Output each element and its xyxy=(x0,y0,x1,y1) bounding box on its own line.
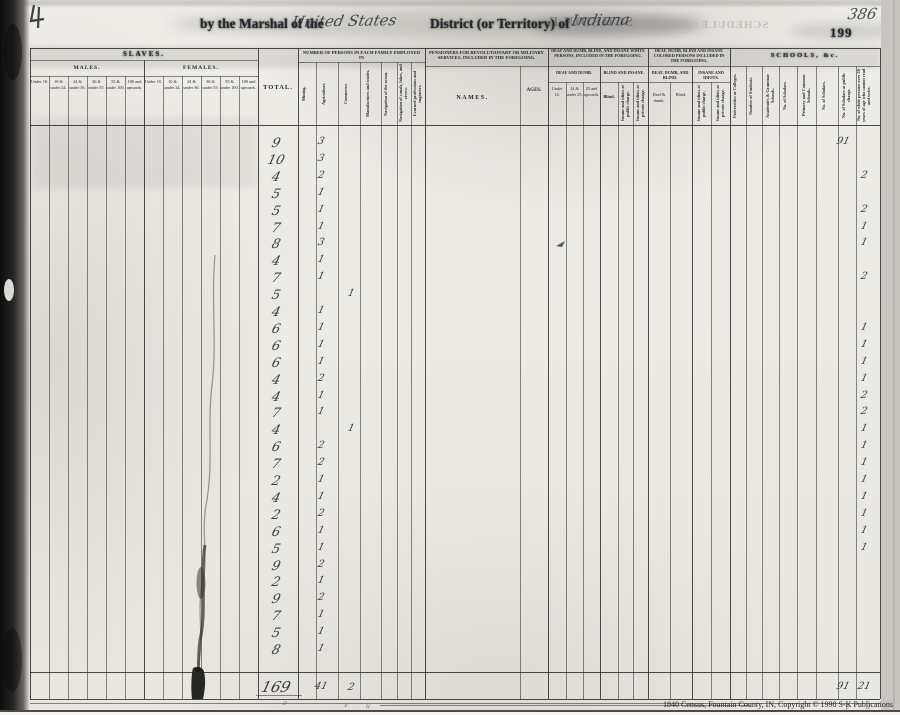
tally-mark: y xyxy=(841,703,853,711)
column-label-schools: Primary and Common Schools. xyxy=(801,68,813,123)
column-label-schools: Number of Students. xyxy=(748,68,760,123)
handwritten-value-illiterate: 2 xyxy=(851,170,878,181)
column-label-employment: Manufactures and trades. xyxy=(365,64,377,123)
handwritten-value-total: 7 xyxy=(262,609,290,624)
section-title-white-impaired: DEAF AND DUMB, BLIND, AND INSANE WHITE P… xyxy=(550,49,646,59)
grid-line-vertical xyxy=(692,66,693,699)
handwritten-value-agriculture: 1 xyxy=(308,339,335,350)
header-printed-middle: District (or Territory) of xyxy=(430,16,570,32)
column-label-blind: Blind. xyxy=(600,94,618,99)
column-label-schools: No. of Scholars. xyxy=(782,68,794,123)
section-title-slaves: SLAVES. xyxy=(84,50,204,58)
handwritten-value-total: 6 xyxy=(262,440,290,455)
column-label-slave-age: 10 & under 24. xyxy=(49,79,68,90)
column-label-slave-age: 36 & under 55. xyxy=(87,79,106,90)
handwritten-value-total: 4 xyxy=(262,254,290,269)
handwritten-value-agriculture: 2 xyxy=(308,559,335,570)
handwritten-value-illiterate: 1 xyxy=(851,508,878,519)
handwritten-page-number: 386 xyxy=(846,5,878,23)
handwritten-value-agriculture: 2 xyxy=(308,508,335,519)
grid-line-vertical xyxy=(779,66,780,699)
handwritten-value-total: 9 xyxy=(262,559,290,574)
totals-value-agriculture: 41 xyxy=(308,681,335,692)
grid-line-vertical xyxy=(338,62,339,699)
subheader-females: FEMALES. xyxy=(161,65,241,71)
handwritten-value-total: 7 xyxy=(262,271,290,286)
column-title-names: NAMES. xyxy=(432,95,513,102)
grid-line-vertical xyxy=(648,48,649,699)
ghost-schedule-text-2: SCHEDULE xyxy=(700,19,769,31)
column-label-white-deaf: 25 and upwards. xyxy=(583,86,600,97)
grid-line-horizontal xyxy=(30,60,258,61)
handwritten-value-total: 9 xyxy=(262,136,290,151)
grid-line-vertical xyxy=(600,66,601,699)
column-title-ages: AGES. xyxy=(520,88,548,94)
column-label-slave-age: 55 & under 100. xyxy=(106,79,125,90)
column-label-white-deaf: 14 & under 25. xyxy=(566,86,583,97)
grid-line-vertical xyxy=(182,76,183,699)
column-label-colored-deaf: Deaf & dumb. xyxy=(649,92,670,103)
handwritten-value-illiterate: 2 xyxy=(851,204,878,215)
handwritten-value-agriculture: 2 xyxy=(308,170,335,181)
grid-line-vertical xyxy=(298,48,299,699)
handwritten-value-total: 8 xyxy=(262,643,290,658)
handwritten-value-agriculture: 1 xyxy=(308,254,335,265)
column-label-schools: Academies & Grammar Schools. xyxy=(765,68,777,123)
handwritten-value-total: 5 xyxy=(262,204,290,219)
grid-line-vertical xyxy=(397,62,398,699)
column-label-slave-age: 24 & under 36. xyxy=(68,79,87,90)
handwritten-value-total: 8 xyxy=(262,237,290,252)
grid-line-vertical xyxy=(797,66,798,699)
handwritten-value-agriculture: 1 xyxy=(308,643,335,654)
grid-line-vertical xyxy=(425,48,426,699)
column-label-slave-age: 100 and upwards. xyxy=(125,79,144,90)
handwritten-value-total: 5 xyxy=(262,288,290,303)
grid-line-vertical xyxy=(201,76,202,699)
column-label-white-deaf: Under 14. xyxy=(549,86,566,97)
grid-line-vertical xyxy=(548,48,549,699)
grid-line-horizontal xyxy=(730,66,880,67)
column-label-employment: Mining. xyxy=(301,64,313,123)
handwritten-value-total: 6 xyxy=(262,525,290,540)
printed-page-number: 199 xyxy=(830,25,853,40)
right-margin xyxy=(881,0,900,715)
handwritten-value-illiterate: 1 xyxy=(851,542,878,553)
grid-line-vertical xyxy=(816,66,817,699)
grid-line-horizontal xyxy=(648,66,730,67)
handwritten-value-commerce: 1 xyxy=(338,288,365,299)
tally-mark: u xyxy=(862,703,874,711)
handwritten-value-illiterate: 1 xyxy=(851,221,878,232)
handwritten-value-total: 5 xyxy=(262,626,290,641)
grid-line-vertical xyxy=(583,82,584,699)
handwritten-value-agriculture: 1 xyxy=(308,491,335,502)
handwritten-value-agriculture: 1 xyxy=(308,305,335,316)
grid-line-vertical xyxy=(258,48,259,699)
handwritten-value-total: 6 xyxy=(262,322,290,337)
grid-line-horizontal xyxy=(30,703,880,704)
grid-line-vertical xyxy=(566,82,567,699)
column-label-slave-age: 36 & under 55. xyxy=(201,79,220,90)
section-title-employment: NUMBER OF PERSONS IN EACH FAMILY EMPLOYE… xyxy=(300,50,423,61)
grid-line-vertical xyxy=(239,76,240,699)
handwritten-value-agriculture: 2 xyxy=(308,440,335,451)
handwritten-value-agriculture: 1 xyxy=(308,187,335,198)
totals-value-commerce: 2 xyxy=(338,682,365,693)
handwritten-value-illiterate: 1 xyxy=(851,491,878,502)
column-label-slave-age: Under 10. xyxy=(144,79,163,85)
column-label-colored-insane: Insane and idiots at public charge. xyxy=(696,84,708,123)
census-scan-page: SCHEDULE SCHEDULE by the Marshal of the … xyxy=(0,0,900,715)
grid-line-vertical xyxy=(125,76,126,699)
grid-line-horizontal xyxy=(30,48,880,49)
handwritten-value-illiterate: 1 xyxy=(851,457,878,468)
handwritten-value-agriculture: 1 xyxy=(308,204,335,215)
handwritten-value-agriculture: 1 xyxy=(308,542,335,553)
handwritten-value-agriculture: 1 xyxy=(308,474,335,485)
handwritten-value-illiterate: 1 xyxy=(851,423,878,434)
grid-line-horizontal xyxy=(298,62,425,63)
handwritten-value-agriculture: 3 xyxy=(308,136,335,147)
handwritten-value-agriculture: 1 xyxy=(308,626,335,637)
handwritten-value-total: 4 xyxy=(262,373,290,388)
grid-line-horizontal xyxy=(548,82,730,83)
section-title-pensioners: PENSIONERS FOR REVOLUTIONARY OR MILITARY… xyxy=(427,50,546,61)
column-label-colored-insane: Insane and idiots at private charge. xyxy=(715,84,727,123)
handwritten-value-agriculture: 1 xyxy=(308,390,335,401)
handwritten-value-agriculture: 2 xyxy=(308,457,335,468)
handwritten-value-total: 7 xyxy=(262,406,290,421)
handwritten-value-illiterate: 2 xyxy=(851,390,878,401)
handwritten-value-illiterate: 2 xyxy=(851,271,878,282)
grid-line-vertical xyxy=(762,66,763,699)
column-label-employment: Agriculture. xyxy=(321,64,333,123)
grid-line-vertical xyxy=(411,62,412,699)
handwritten-value-total: 4 xyxy=(262,423,290,438)
column-label-schools: No. of white persons over 20 years of ag… xyxy=(856,68,880,123)
grid-line-horizontal xyxy=(30,76,258,77)
grid-line-vertical xyxy=(30,48,31,699)
tally-mark: v xyxy=(340,701,352,709)
handwritten-value-total: 4 xyxy=(262,390,290,405)
section-title-colored-impaired: DEAF, DUMB, BLIND AND INSANE COLORED PER… xyxy=(650,49,728,64)
handwritten-value-agriculture: 3 xyxy=(308,153,335,164)
subheader-males: MALES. xyxy=(47,65,127,71)
handwritten-value-total: 9 xyxy=(262,592,290,607)
grid-line-vertical xyxy=(106,76,107,699)
handwritten-value-agriculture: 1 xyxy=(308,271,335,282)
totals-underline xyxy=(256,695,302,696)
grid-line-horizontal xyxy=(548,66,648,67)
column-label-slave-age: 55 & under 100. xyxy=(220,79,239,90)
grid-line-vertical xyxy=(381,62,382,699)
binding-strip xyxy=(0,0,30,715)
handwritten-value-illiterate: 1 xyxy=(851,474,878,485)
column-label-employment: Navigation of canals, lakes, and rivers. xyxy=(398,64,410,123)
column-label-schools: No. of Scholars at public charge. xyxy=(841,68,853,123)
section-title-schools: SCHOOLS, &c. xyxy=(745,52,865,60)
handwritten-value-total: 5 xyxy=(262,542,290,557)
grid-line-vertical xyxy=(633,82,634,699)
totals-value-illiterate: 21 xyxy=(851,681,878,692)
handwritten-value-total: 4 xyxy=(262,491,290,506)
handwritten-value-illiterate: 1 xyxy=(851,373,878,384)
subheader-white-blind: BLIND AND INSANE. xyxy=(600,71,648,76)
tally-mark: o xyxy=(279,699,291,707)
header-handwritten-region: United States xyxy=(290,11,398,31)
grid-line-vertical xyxy=(144,60,145,699)
handwritten-value-total: 7 xyxy=(262,457,290,472)
stray-ink-mark xyxy=(556,241,565,247)
column-label-schools: Universities or Colleges. xyxy=(732,68,744,123)
handwritten-value-total: 4 xyxy=(262,305,290,320)
column-label-slave-age: 10 & under 24. xyxy=(163,79,182,90)
handwritten-value-total: 4 xyxy=(262,170,290,185)
handwritten-value-illiterate: 2 xyxy=(851,406,878,417)
grid-line-vertical xyxy=(730,48,731,699)
grid-line-horizontal xyxy=(30,125,880,126)
handwritten-value-agriculture: 1 xyxy=(308,525,335,536)
handwritten-value-scholars: 91 xyxy=(830,136,857,147)
totals-value-total: 169 xyxy=(258,678,294,696)
handwritten-value-total: 10 xyxy=(262,153,290,168)
handwritten-value-total: 6 xyxy=(262,339,290,354)
top-edge-shadow xyxy=(0,0,900,6)
handwritten-value-agriculture: 1 xyxy=(308,356,335,367)
grid-line-vertical xyxy=(711,82,712,699)
handwritten-value-total: 2 xyxy=(262,575,290,590)
handwritten-value-illiterate: 1 xyxy=(851,356,878,367)
handwritten-value-illiterate: 1 xyxy=(851,322,878,333)
handwritten-value-agriculture: 1 xyxy=(308,406,335,417)
grid-line-vertical xyxy=(360,62,361,699)
handwritten-value-agriculture: 1 xyxy=(308,322,335,333)
grid-line-vertical xyxy=(670,82,671,699)
handwritten-value-agriculture: 1 xyxy=(308,575,335,586)
handwritten-value-agriculture: 2 xyxy=(308,373,335,384)
column-label-white-insane: Insane and idiots at private charge. xyxy=(635,84,647,123)
column-label-colored-deaf: Blind. xyxy=(671,92,692,98)
grid-line-vertical xyxy=(220,76,221,699)
grid-line-vertical xyxy=(746,66,747,699)
column-label-slave-age: 100 and upwards. xyxy=(239,79,258,90)
handwritten-value-agriculture: 1 xyxy=(308,609,335,620)
subheader-colored-insane: INSANE AND IDIOTS. xyxy=(692,71,730,81)
column-label-employment: Navigation of the ocean. xyxy=(383,64,395,123)
column-label-slave-age: 24 & under 36. xyxy=(182,79,201,90)
grid-line-vertical xyxy=(163,76,164,699)
handwritten-value-illiterate: 1 xyxy=(851,525,878,536)
handwritten-value-agriculture: 1 xyxy=(308,221,335,232)
grid-line-horizontal xyxy=(30,699,880,700)
header-handwritten-state: Indiana xyxy=(570,10,631,29)
grid-line-vertical xyxy=(520,66,521,699)
column-label-schools: No. of Scholars. xyxy=(821,68,833,123)
handwritten-value-illiterate: 1 xyxy=(851,237,878,248)
handwritten-value-total: 2 xyxy=(262,474,290,489)
column-label-white-insane: Insane and idiots at public charge. xyxy=(620,84,632,123)
handwritten-value-illiterate: 1 xyxy=(851,440,878,451)
subheader-white-deaf: DEAF AND DUMB. xyxy=(548,71,600,76)
corner-ink-mark xyxy=(31,5,44,28)
grid-line-horizontal xyxy=(425,66,548,67)
grid-line-vertical xyxy=(880,48,881,699)
subheader-colored-deaf: DEAF, DUMB, AND BLIND. xyxy=(648,71,692,81)
handwritten-value-total: 7 xyxy=(262,221,290,236)
grid-line-horizontal xyxy=(30,672,880,673)
handwritten-value-total: 6 xyxy=(262,356,290,371)
handwritten-value-illiterate: 1 xyxy=(851,339,878,350)
column-label-employment: Commerce. xyxy=(343,64,355,123)
handwritten-value-total: 2 xyxy=(262,508,290,523)
handwritten-value-commerce: 1 xyxy=(338,423,365,434)
handwritten-value-agriculture: 3 xyxy=(308,237,335,248)
grid-line-vertical xyxy=(87,76,88,699)
column-label-employment: Learned professions and engineers. xyxy=(412,64,424,123)
handwritten-value-total: 5 xyxy=(262,187,290,202)
grid-line-vertical xyxy=(618,82,619,699)
column-label-slave-age: Under 10. xyxy=(30,79,49,85)
grid-line-vertical xyxy=(838,66,839,699)
grid-line-vertical xyxy=(68,76,69,699)
handwritten-value-agriculture: 2 xyxy=(308,592,335,603)
right-margin-streak xyxy=(893,0,895,715)
grid-line-vertical xyxy=(49,76,50,699)
tally-mark: u xyxy=(362,702,374,710)
column-title-total: TOTAL. xyxy=(258,84,298,92)
